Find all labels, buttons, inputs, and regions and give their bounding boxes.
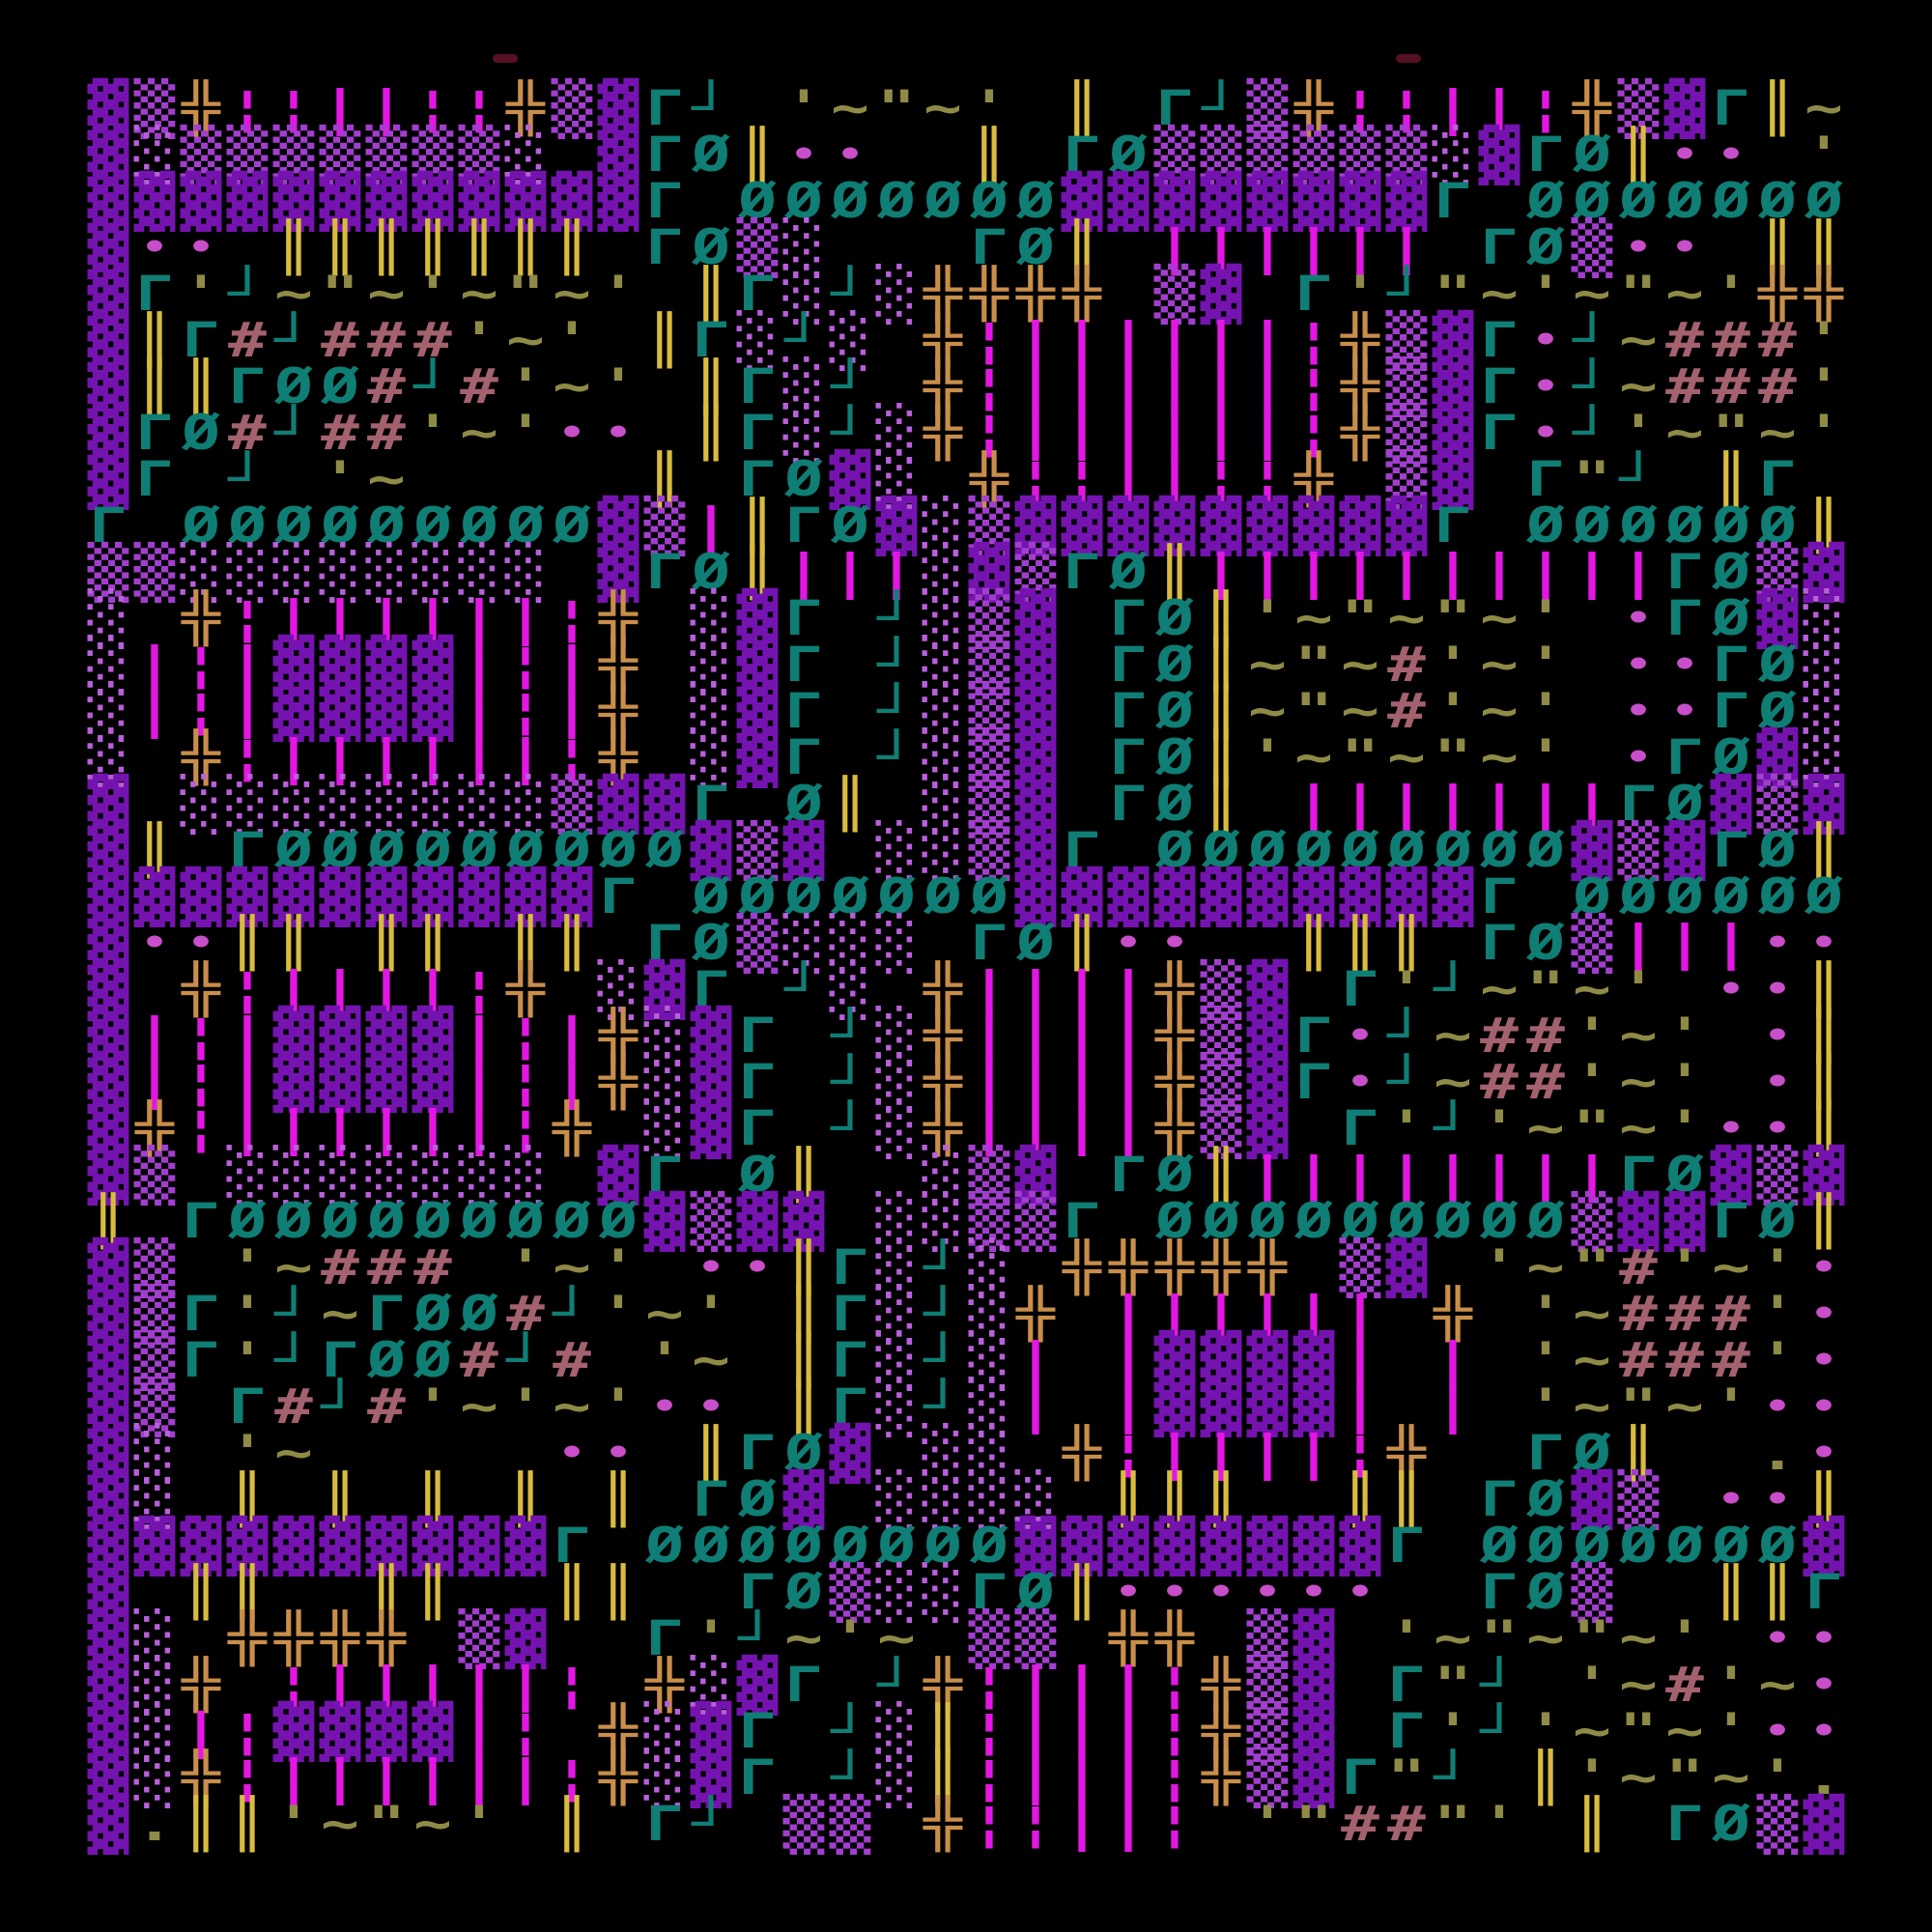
- olive-quote-glyph: ': [1793, 363, 1854, 410]
- dense-shade-block: ▓: [1793, 781, 1854, 827]
- dense-shade-block: ▓: [1793, 1522, 1854, 1569]
- gamma-glyph: Γ: [1793, 1569, 1854, 1615]
- magenta-dot-glyph: •: [1793, 1291, 1854, 1337]
- yellow-double-bar-glyph: ║: [1793, 966, 1854, 1012]
- yellow-double-bar-glyph: ║: [1793, 827, 1854, 873]
- clipped-glyph-fragment: [493, 54, 518, 63]
- dense-shade-block: ▓: [1793, 1801, 1854, 1847]
- magenta-dot-glyph: •: [1793, 1430, 1854, 1476]
- orange-cross-glyph: ╬: [1793, 270, 1854, 317]
- art-canvas: ▓▒╬¦¦||¦¦╬▒▓Γ┘ '~"~' ║ Γ┘▒╬¦¦||¦╬▒▓Γ║~▓░…: [0, 0, 1932, 1932]
- magenta-dot-glyph: •: [1793, 1383, 1854, 1430]
- olive-quote-glyph: ': [1793, 317, 1854, 363]
- yellow-double-bar-glyph: ║: [1793, 1198, 1854, 1244]
- dense-shade-block: ▓: [1793, 1151, 1854, 1198]
- olive-quote-glyph: ': [1793, 410, 1854, 456]
- magenta-dot-glyph: •: [1793, 1337, 1854, 1383]
- empty-cell: [1793, 456, 1854, 502]
- magenta-dot-glyph: •: [1793, 1708, 1854, 1754]
- magenta-dot-glyph: •: [1793, 920, 1854, 966]
- yellow-double-bar-glyph: ║: [1793, 1059, 1854, 1105]
- textmode-grid: ▓▒╬¦¦||¦¦╬▒▓Γ┘ '~"~' ║ Γ┘▒╬¦¦||¦╬▒▓Γ║~▓░…: [85, 85, 1847, 1847]
- magenta-dot-glyph: •: [1793, 1244, 1854, 1291]
- clipped-glyph-fragment: [1396, 54, 1421, 63]
- boxed-o-slash-glyph: Ø: [1793, 178, 1854, 224]
- olive-tilde-glyph: ~: [1793, 85, 1854, 131]
- yellow-double-bar-glyph: ║: [1793, 224, 1854, 270]
- magenta-dot-glyph: •: [1793, 1615, 1854, 1662]
- magenta-dot-glyph: •: [1793, 1662, 1854, 1708]
- yellow-double-bar-glyph: ║: [1793, 1012, 1854, 1059]
- boxed-o-slash-glyph: Ø: [1793, 873, 1854, 920]
- olive-quote-glyph: ': [1793, 131, 1854, 178]
